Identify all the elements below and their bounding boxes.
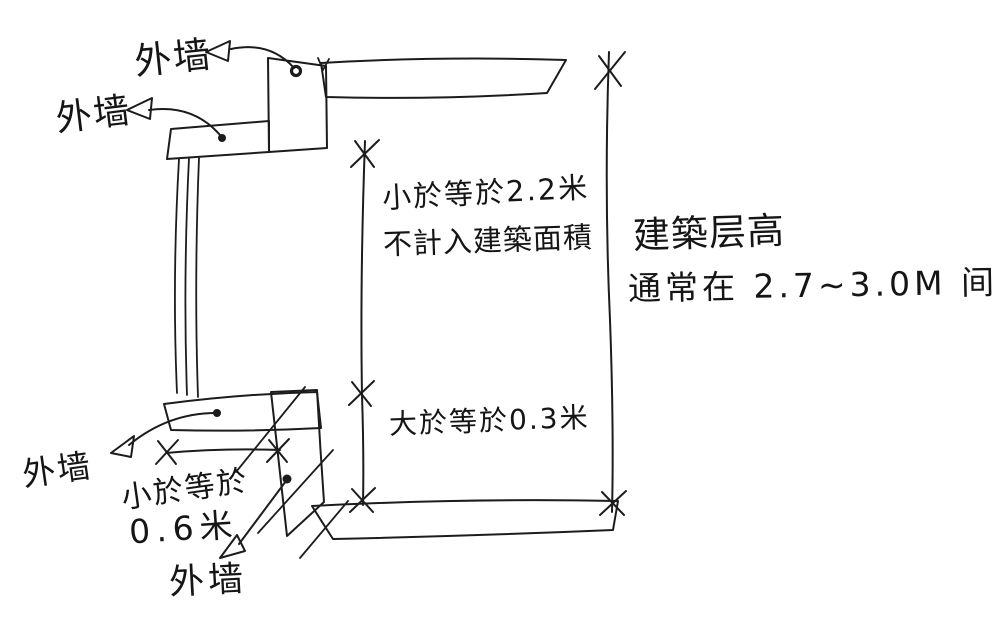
leader-line bbox=[231, 47, 294, 68]
leader-anchor-dot bbox=[213, 409, 221, 417]
leader-wall-middle bbox=[127, 98, 226, 142]
window-line-1 bbox=[175, 159, 179, 393]
note-upper-zone-line1: 小於等於2.2米 bbox=[381, 170, 590, 215]
sketch-canvas: 外墙 外墙 小於等於2.2米 不計入建築面積 建築层高 通常在 2.7~3.0M… bbox=[0, 0, 1000, 615]
upper-left-wall-band bbox=[167, 121, 269, 159]
dimension-line bbox=[361, 141, 365, 505]
stray-hatch-strokes bbox=[236, 58, 348, 558]
leader-anchor-dot bbox=[292, 67, 301, 76]
label-exterior-wall-top: 外墙 bbox=[132, 33, 214, 84]
note-floor-height-line1: 建築层高 bbox=[632, 209, 785, 257]
overhang-width-dimension bbox=[156, 439, 289, 464]
bottom-floor-slab bbox=[312, 500, 618, 539]
window-line-3 bbox=[196, 158, 199, 397]
note-overhang-line2: 0.6米 bbox=[128, 505, 240, 552]
sketch-page: 外墙 外墙 小於等於2.2米 不計入建築面積 建築层高 通常在 2.7~3.0M… bbox=[0, 0, 1000, 615]
window-line-2 bbox=[185, 158, 189, 395]
note-upper-zone-line2: 不計入建築面積 bbox=[382, 220, 593, 261]
leader-arrowhead-icon bbox=[111, 436, 134, 457]
label-exterior-wall-middle: 外墙 bbox=[53, 90, 133, 140]
leader-line bbox=[129, 413, 216, 445]
lower-left-wall-band bbox=[164, 392, 321, 431]
note-floor-height-line2: 通常在 2.7~3.0M 间 bbox=[628, 263, 999, 308]
dimension-line bbox=[166, 449, 280, 453]
interior-height-dimension bbox=[349, 140, 379, 512]
top-slab-wall bbox=[321, 59, 566, 98]
label-exterior-wall-bottom: 外墙 bbox=[168, 559, 248, 603]
leader-line bbox=[149, 109, 220, 135]
leader-anchor-dot bbox=[283, 475, 292, 484]
label-exterior-wall-lower-left: 外墙 bbox=[20, 446, 95, 494]
leader-anchor-dot bbox=[218, 134, 226, 142]
floor-height-dimension bbox=[595, 52, 626, 515]
leader-wall-top bbox=[206, 41, 301, 76]
dimension-tick-top bbox=[595, 52, 625, 89]
upper-wall-column bbox=[268, 58, 327, 152]
dimension-line bbox=[607, 52, 613, 512]
note-lower-zone: 大於等於0.3米 bbox=[389, 401, 591, 441]
